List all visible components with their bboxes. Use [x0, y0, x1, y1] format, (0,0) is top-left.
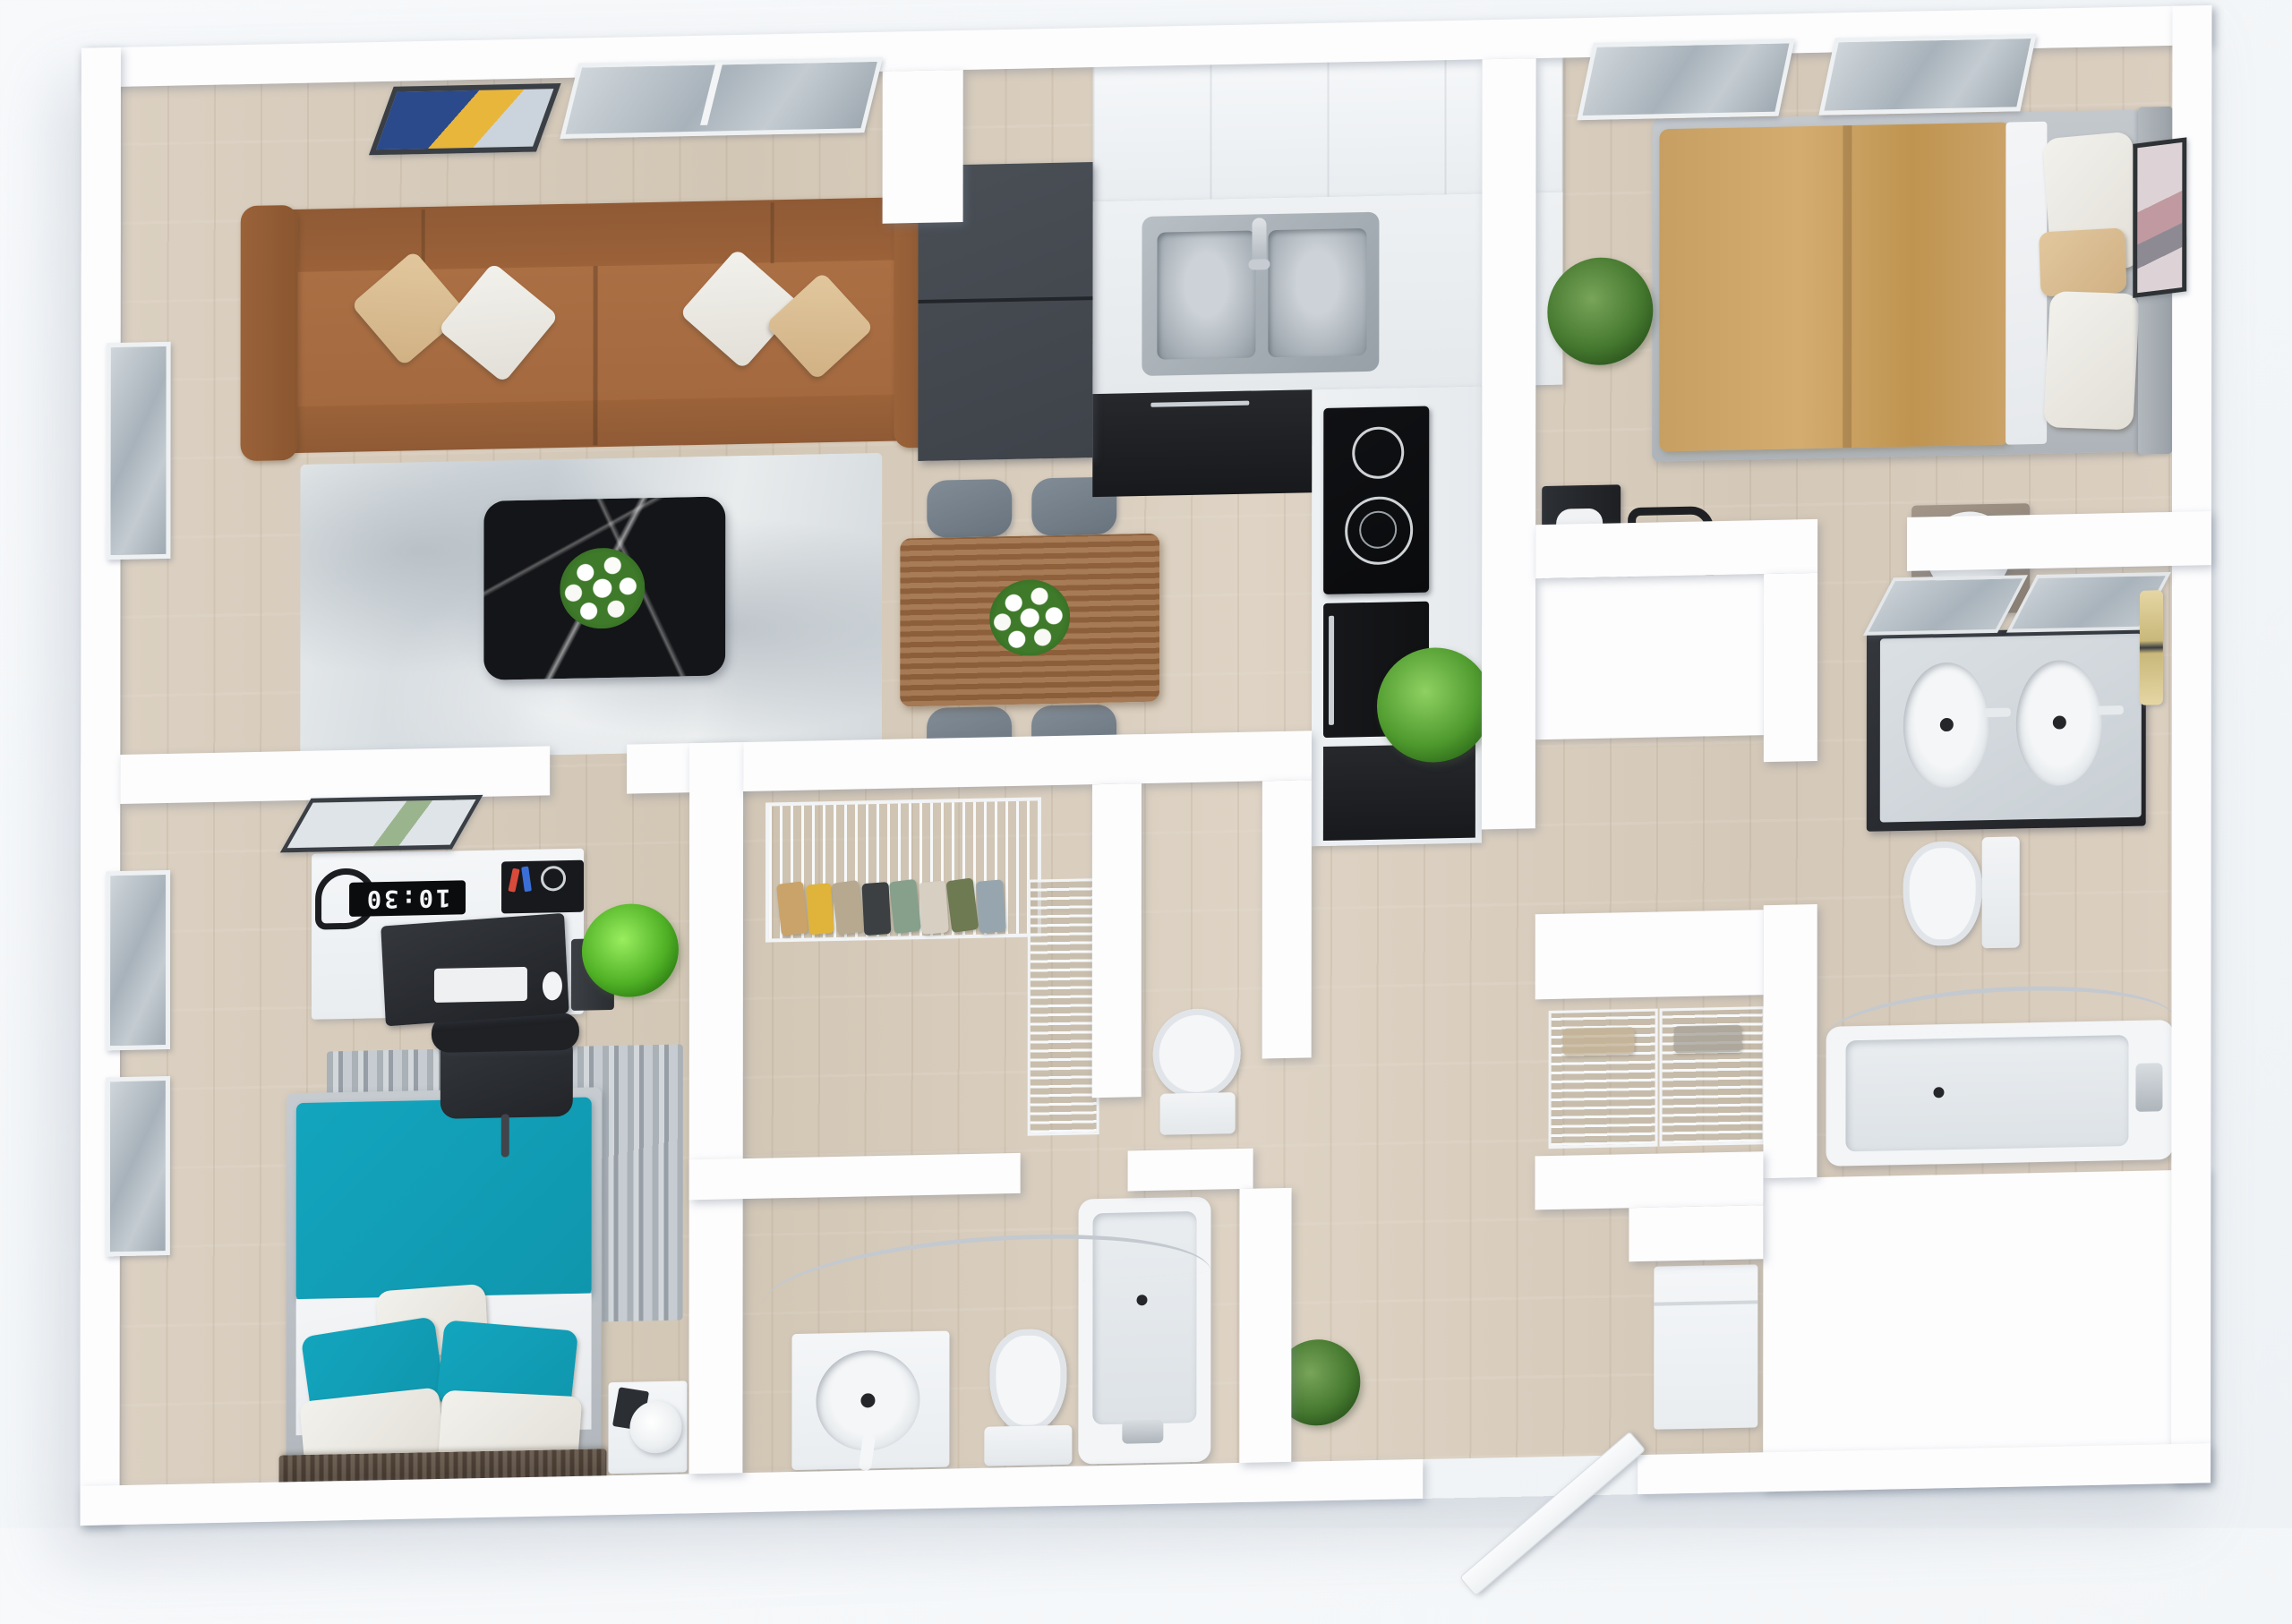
- primary-wall-art: [2133, 137, 2186, 298]
- wall-bedroom2-right: [688, 742, 743, 1474]
- sofa-cushion-seam: [593, 266, 597, 445]
- hanging-clothes: [861, 882, 891, 936]
- bedroom2-window: [106, 1076, 170, 1256]
- vanity-faucet: [1984, 708, 2011, 718]
- primary-window: [1818, 34, 2036, 115]
- bedroom2-wall-art: [280, 795, 483, 853]
- primary-window: [1577, 38, 1794, 120]
- dining-chair: [927, 479, 1012, 538]
- wc-toilet-tank: [1160, 1092, 1236, 1135]
- sink-bowl-left: [1157, 230, 1255, 359]
- wall-mass: [1535, 574, 1764, 739]
- wall-linen-bottom: [1535, 1151, 1763, 1209]
- ensuite-toilet-tank: [1982, 836, 2020, 948]
- wall-bath-left: [1763, 904, 1817, 1178]
- wall-closet-right: [1092, 783, 1142, 1098]
- main-toilet-tank: [984, 1425, 1072, 1466]
- sink-bowl-right: [1268, 228, 1366, 357]
- living-wall-art: [369, 83, 561, 155]
- wall-bath1-top: [689, 1153, 1021, 1200]
- sink-faucet-base: [1248, 259, 1270, 269]
- wall-sconce: [2140, 590, 2163, 705]
- bed-duvet-tan: [1659, 122, 2010, 451]
- wall-wc-right: [1262, 780, 1312, 1058]
- bed-duvet-fold: [1843, 125, 1852, 448]
- hanging-clothes: [806, 883, 834, 935]
- hanging-clothes: [776, 881, 808, 936]
- basket-contents: [1674, 1025, 1742, 1054]
- office-chair-pole: [501, 1114, 509, 1157]
- bed-pillow-white: [2043, 291, 2140, 430]
- wall-bath-left: [1764, 573, 1817, 762]
- outer-wall-left: [81, 47, 121, 1526]
- main-toilet: [989, 1329, 1066, 1432]
- wall-mass-bottom-right: [1763, 1169, 2211, 1492]
- floor-plan: 10:30: [81, 5, 2212, 1526]
- wall-kitchen-bedroom: [1482, 58, 1536, 829]
- tub-faucet: [2135, 1063, 2162, 1112]
- wall-bedroom2-top: [120, 746, 550, 804]
- bedroom2-window: [106, 870, 170, 1050]
- wall-living-kitchen: [883, 70, 963, 224]
- vanity-faucet: [2097, 705, 2124, 715]
- closet-wire-drawers: [1028, 878, 1099, 1136]
- wall-mass: [1535, 910, 1764, 999]
- wall-bedroom-bath: [1907, 511, 2211, 571]
- washer: [1654, 1264, 1757, 1429]
- sofa-arm-left: [241, 205, 298, 461]
- hanging-clothes: [976, 879, 1006, 933]
- sofa-cushion-seam: [771, 202, 774, 263]
- ensuite-toilet: [1903, 841, 1982, 946]
- wall-washer-closet: [1629, 1205, 1763, 1261]
- wall-bath1-right: [1239, 1188, 1291, 1463]
- digital-clock: 10:30: [349, 880, 466, 917]
- hanging-clothes: [889, 879, 921, 934]
- keyboard: [434, 967, 527, 1003]
- main-tub-faucet: [1122, 1420, 1163, 1444]
- bed2-duvet-teal: [296, 1098, 592, 1303]
- basket-contents: [1563, 1027, 1635, 1056]
- wall-bedroom-bath: [1535, 519, 1817, 578]
- bed-pillow-tan: [2039, 227, 2126, 296]
- hanging-clothes: [919, 881, 949, 935]
- living-window-left: [106, 342, 170, 560]
- wall-bath1-top: [1128, 1149, 1253, 1192]
- living-window: [560, 57, 883, 139]
- oven-handle: [1329, 616, 1334, 725]
- ensuite-bathtub-basin: [1845, 1035, 2128, 1151]
